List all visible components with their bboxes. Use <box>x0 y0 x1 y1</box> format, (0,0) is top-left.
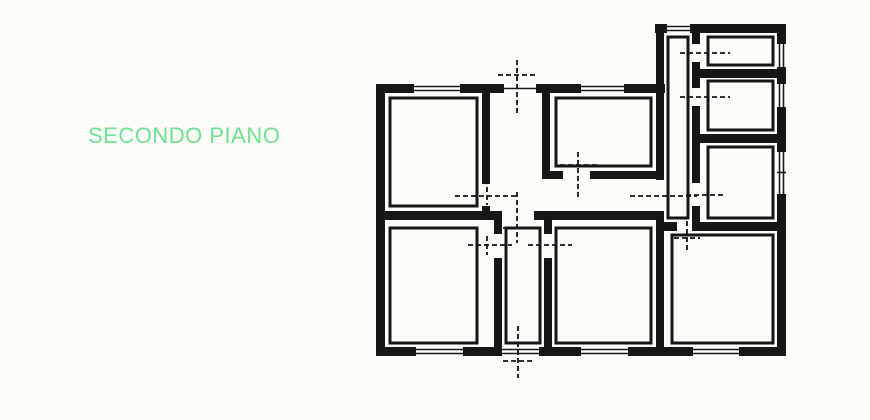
wall-segment <box>739 347 786 356</box>
wall-segment <box>542 171 563 179</box>
window-opening <box>502 347 539 356</box>
wall-segment <box>376 347 416 356</box>
screenshot-root: SECONDO PIANO <box>0 0 870 420</box>
wall-segment <box>590 171 656 179</box>
window-opening <box>581 84 624 93</box>
window-opening <box>777 44 786 67</box>
wall-segment <box>534 211 656 220</box>
wall-segment <box>664 222 677 231</box>
wall-segment <box>700 69 777 78</box>
wall-segment <box>376 84 414 93</box>
wall-segment <box>777 107 786 152</box>
wall-segment <box>544 258 552 347</box>
wall-segment <box>376 84 385 356</box>
room-outline-bottom-left-room <box>390 228 477 343</box>
window-opening <box>581 347 628 356</box>
room-outline-top-left-room <box>390 98 477 206</box>
room-outline-corridor <box>668 37 688 218</box>
wall-segment <box>777 24 786 44</box>
wall-segment <box>494 258 502 347</box>
floor-plan <box>0 0 870 420</box>
room-outline-right-room-3 <box>708 147 773 218</box>
wall-segment <box>542 93 550 179</box>
window-opening <box>414 84 460 93</box>
wall-segment <box>539 347 581 356</box>
wall-segment <box>692 62 700 88</box>
wall-segment <box>777 194 786 356</box>
wall-segment <box>656 24 664 180</box>
wall-segment <box>690 24 786 33</box>
wall-segment <box>494 220 502 234</box>
room-outline-inner-bath-room <box>556 98 651 166</box>
wall-segment <box>656 211 664 356</box>
room-outline-bottom-right-room <box>672 235 773 343</box>
window-opening <box>416 347 463 356</box>
wall-segment <box>536 84 581 93</box>
wall-segment <box>700 134 777 143</box>
wall-segment <box>692 33 700 44</box>
room-outline-right-room-1 <box>708 37 773 65</box>
window-opening <box>693 347 739 356</box>
wall-segment <box>692 106 700 183</box>
room-outline-right-room-2 <box>708 81 773 130</box>
window-opening <box>667 24 690 33</box>
wall-segment <box>697 222 777 231</box>
wall-segment <box>482 93 490 184</box>
wall-segment <box>385 211 502 220</box>
wall-segment <box>544 220 552 234</box>
wall-segment <box>482 206 490 211</box>
wall-segment <box>777 67 786 84</box>
window-opening <box>777 84 786 107</box>
wall-segment <box>460 84 504 93</box>
wall-segment <box>463 347 502 356</box>
